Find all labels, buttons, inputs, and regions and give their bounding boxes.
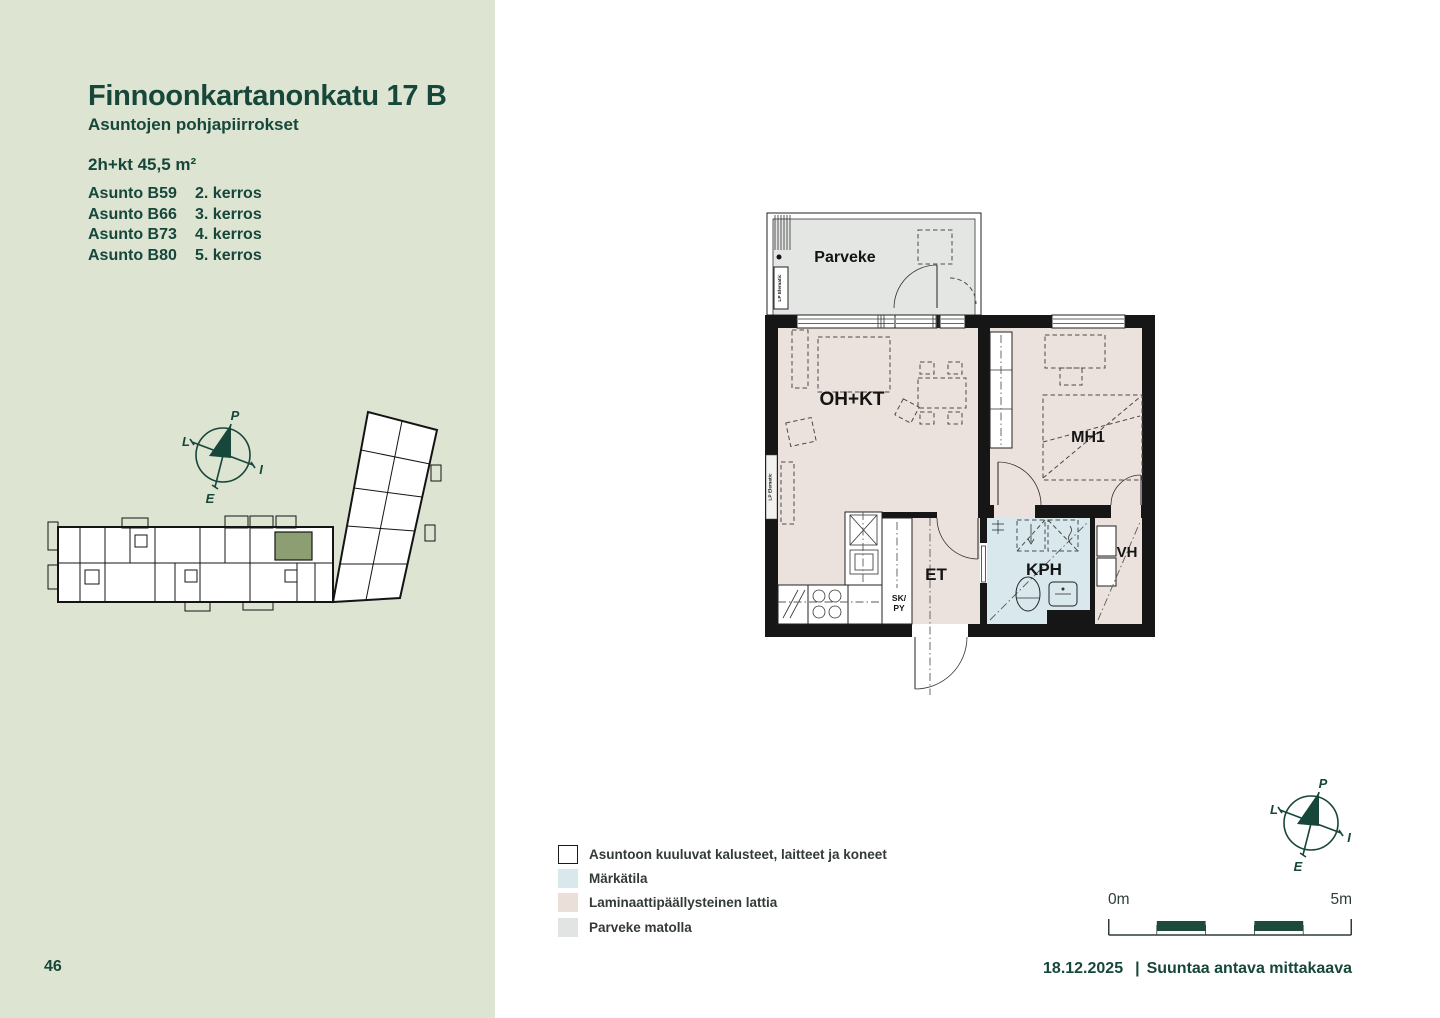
room-label-mh1: MH1 [1071, 429, 1105, 446]
apartment-floor: 2. kerros [195, 184, 262, 205]
element-label-balcony: LP Elematic [777, 274, 783, 301]
legend-swatch-laminate [558, 893, 578, 912]
room-mh1-floor [990, 328, 1142, 505]
brochure-page: Finnoonkartanonkatu 17 B Asuntojen pohja… [0, 0, 1440, 1018]
footer-date: 18.12.2025 [1043, 960, 1123, 978]
apartment-floor: 3. kerros [195, 205, 262, 226]
skpy-closet: SK/ PY [882, 518, 912, 624]
room-label-kph: KPH [1026, 560, 1062, 579]
site-plan [45, 405, 450, 615]
apartment-list: Asunto B59 2. kerros Asunto B66 3. kerro… [88, 184, 262, 267]
legend-label: Märkätila [589, 871, 648, 886]
scale-end-label: 5m [1330, 891, 1352, 909]
room-label-et: ET [925, 565, 947, 584]
element-label-wall: LP Elematic [768, 473, 774, 500]
legend: Asuntoon kuuluvat kalusteet, laitteet ja… [558, 842, 887, 940]
room-label-vh: VH [1117, 544, 1138, 561]
apartment-name: Asunto B80 [88, 246, 195, 267]
entry-door-arc [915, 637, 967, 689]
compass-east-label: I [1347, 830, 1351, 845]
compass-plan: P L I E [1268, 771, 1358, 876]
apartment-name: Asunto B73 [88, 225, 195, 246]
apartment-name: Asunto B59 [88, 184, 195, 205]
compass-south-label: E [1294, 859, 1303, 874]
apartment-floor: 4. kerros [195, 225, 262, 246]
page-subtitle: Asuntojen pohjapiirrokset [88, 115, 299, 135]
balcony-dot [777, 255, 782, 260]
scale-bar: 0m 5m [1108, 891, 1352, 942]
footer: 18.12.2025 | Suuntaa antava mittakaava [1043, 960, 1352, 978]
footer-separator: | [1135, 960, 1139, 978]
legend-swatch-fixtures [558, 845, 578, 864]
site-highlighted-unit [275, 532, 312, 560]
compass-west-label: L [1270, 802, 1278, 817]
legend-row: Märkätila [558, 866, 887, 890]
apartment-row: Asunto B66 3. kerros [88, 205, 262, 226]
apartment-row: Asunto B80 5. kerros [88, 246, 262, 267]
room-label-parveke: Parveke [814, 249, 875, 266]
scale-start-label: 0m [1108, 891, 1130, 909]
legend-row: Parveke matolla [558, 915, 887, 939]
windows [797, 315, 1125, 328]
legend-label: Laminaattipäällysteinen lattia [589, 895, 777, 910]
apartment-row: Asunto B59 2. kerros [88, 184, 262, 205]
apartment-type: 2h+kt 45,5 m² [88, 155, 196, 175]
compass-north-label: P [1319, 776, 1328, 791]
page-title: Finnoonkartanonkatu 17 B [88, 80, 447, 113]
floor-plan: LP Elematic Parveke [700, 190, 1180, 700]
room-label-ohkt: OH+KT [820, 389, 885, 410]
footer-scale-note: Suuntaa antava mittakaava [1147, 960, 1352, 978]
legend-swatch-wetroom [558, 869, 578, 888]
legend-label: Parveke matolla [589, 920, 692, 935]
scale-bar-graphic [1108, 911, 1352, 937]
legend-swatch-balcony [558, 918, 578, 937]
page-number: 46 [44, 958, 62, 976]
north-arrow-icon [1297, 792, 1319, 826]
apartment-row: Asunto B73 4. kerros [88, 225, 262, 246]
legend-row: Asuntoon kuuluvat kalusteet, laitteet ja… [558, 842, 887, 866]
apartment-floor: 5. kerros [195, 246, 262, 267]
apartment-name: Asunto B66 [88, 205, 195, 226]
room-parveke: LP Elematic Parveke [767, 213, 981, 315]
legend-label: Asuntoon kuuluvat kalusteet, laitteet ja… [589, 847, 887, 862]
room-label-py: PY [893, 603, 905, 613]
legend-row: Laminaattipäällysteinen lattia [558, 891, 887, 915]
room-label-sk: SK/ [892, 593, 907, 603]
